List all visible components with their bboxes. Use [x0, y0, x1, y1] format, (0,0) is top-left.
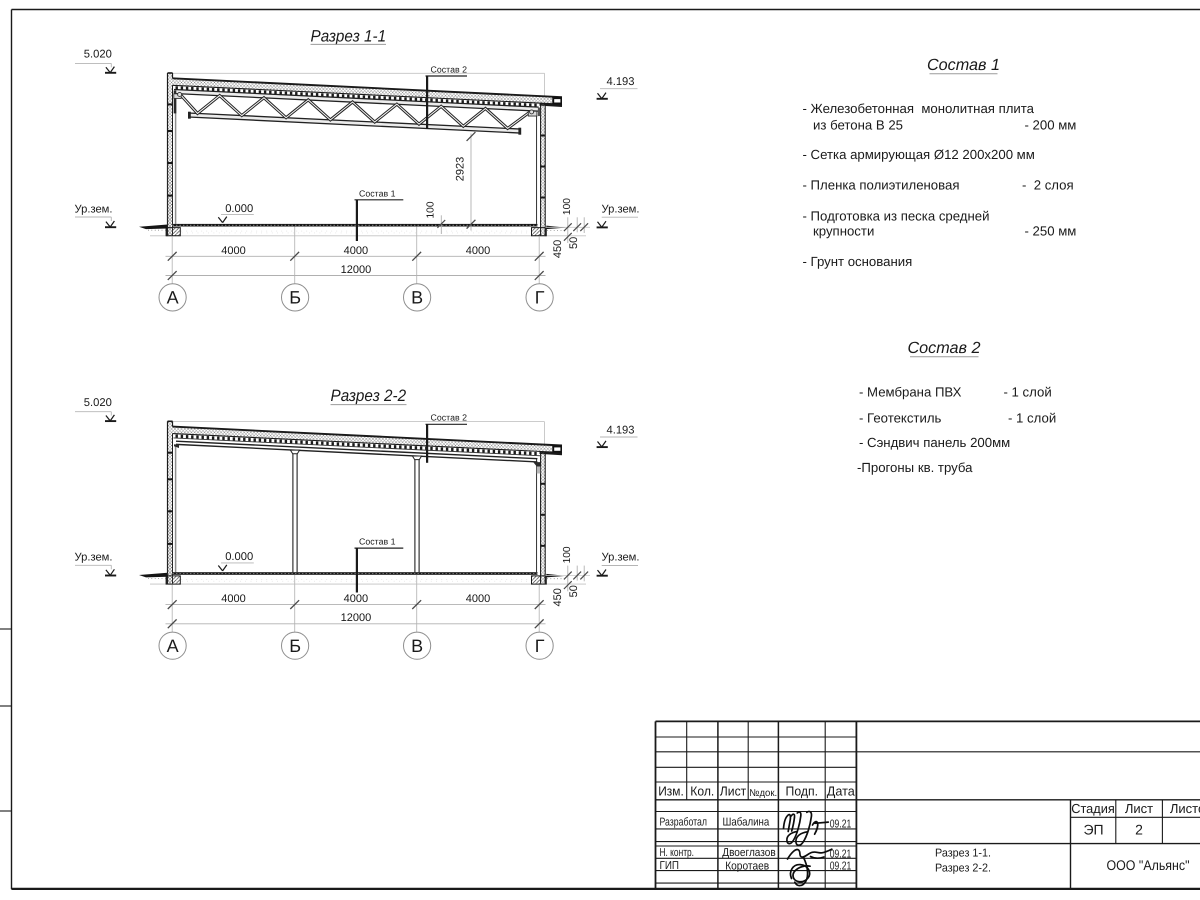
svg-text:Б: Б [289, 288, 301, 308]
svg-text:- Геотекстиль: - Геотекстиль [859, 411, 942, 426]
svg-text:12000: 12000 [341, 264, 372, 276]
svg-text:Ур.зем.: Ур.зем. [602, 203, 640, 215]
svg-text:Изм.: Изм. [658, 784, 684, 799]
svg-text:Ур.зем.: Ур.зем. [75, 552, 113, 564]
svg-text:Разрез 1-1: Разрез 1-1 [311, 27, 387, 45]
svg-text:4000: 4000 [221, 593, 245, 605]
svg-text:Ур.зем.: Ур.зем. [602, 552, 640, 564]
svg-text:Лист: Лист [720, 784, 747, 799]
svg-text:Ур.зем.: Ур.зем. [75, 203, 113, 215]
svg-text:Разрез 2-2: Разрез 2-2 [331, 387, 407, 405]
svg-text:Состав 1: Состав 1 [359, 537, 396, 547]
svg-text:4000: 4000 [344, 593, 368, 605]
svg-text:Коротаев: Коротаев [725, 861, 769, 873]
svg-text:09.21: 09.21 [830, 861, 852, 873]
svg-text:50: 50 [568, 585, 580, 597]
svg-text:12000: 12000 [341, 612, 372, 624]
svg-text:Г: Г [535, 636, 545, 656]
svg-text:№док.: №док. [749, 788, 777, 799]
svg-text:- Пленка полиэтиленовая: - Пленка полиэтиленовая [803, 177, 960, 192]
svg-text:5.020: 5.020 [84, 397, 112, 409]
svg-text:- 200 мм: - 200 мм [1025, 117, 1077, 132]
svg-text:Состав 1: Состав 1 [359, 188, 396, 198]
svg-text:4.193: 4.193 [607, 76, 635, 88]
svg-text:Г: Г [535, 288, 545, 308]
svg-text:5.020: 5.020 [84, 49, 112, 61]
svg-text:- Грунт основания: - Грунт основания [803, 254, 913, 269]
svg-text:Шабалина: Шабалина [723, 816, 770, 828]
svg-text:Б: Б [289, 636, 301, 656]
svg-text:0.000: 0.000 [225, 551, 253, 563]
svg-text:Разрез 1-1.: Разрез 1-1. [935, 848, 991, 860]
svg-text:4000: 4000 [221, 245, 245, 257]
svg-text:ЭП: ЭП [1083, 822, 1103, 838]
svg-text:Дата: Дата [827, 784, 856, 799]
svg-text:- 250 мм: - 250 мм [1025, 224, 1077, 239]
svg-text:Лист: Лист [1125, 801, 1153, 816]
svg-text:2923: 2923 [455, 157, 467, 181]
svg-text:4000: 4000 [466, 593, 490, 605]
svg-text:- Подготовка из песка средней: - Подготовка из песка средней [803, 208, 990, 223]
svg-text:2: 2 [1135, 822, 1143, 838]
svg-text:0.000: 0.000 [225, 203, 253, 215]
svg-text:Разработал: Разработал [660, 816, 708, 828]
svg-text:В: В [411, 636, 423, 656]
svg-text:- Мембрана ПВХ: - Мембрана ПВХ [859, 385, 962, 400]
svg-text:450: 450 [552, 588, 564, 606]
svg-text:Состав 1: Состав 1 [927, 56, 1000, 74]
svg-text:крупности: крупности [813, 224, 874, 239]
svg-text:- 2 слоя: - 2 слоя [1022, 177, 1074, 192]
svg-text:Подп.: Подп. [786, 784, 819, 799]
svg-text:450: 450 [552, 240, 564, 258]
svg-text:Листов: Листов [1170, 801, 1200, 816]
svg-text:В: В [411, 288, 423, 308]
svg-text:- Железобетонная монолитная п: - Железобетонная монолитная плита [803, 101, 1035, 116]
svg-text:Стадия: Стадия [1071, 801, 1115, 816]
svg-text:А: А [167, 636, 179, 656]
svg-text:Состав 2: Состав 2 [907, 339, 980, 357]
svg-text:100: 100 [426, 201, 437, 218]
svg-text:Разрез 2-2.: Разрез 2-2. [935, 862, 991, 874]
svg-text:100: 100 [562, 198, 573, 215]
svg-text:100: 100 [562, 546, 573, 563]
svg-text:ООО "Альянс": ООО "Альянс" [1107, 857, 1190, 873]
svg-text:09.21: 09.21 [830, 818, 852, 830]
svg-text:- Сетка армирующая Ø12 200х200: - Сетка армирующая Ø12 200х200 мм [803, 147, 1035, 162]
svg-text:ГИП: ГИП [660, 860, 680, 872]
svg-text:Состав 2: Состав 2 [431, 64, 468, 74]
svg-text:Состав 2: Состав 2 [431, 413, 468, 423]
svg-text:- 1 слой: - 1 слой [1004, 385, 1052, 400]
svg-text:Двоеглазов: Двоеглазов [722, 847, 776, 859]
svg-text:Н. контр.: Н. контр. [660, 847, 695, 859]
svg-text:50: 50 [568, 237, 580, 249]
svg-text:09.21: 09.21 [830, 849, 852, 861]
svg-text:- Сэндвич панель 200мм: - Сэндвич панель 200мм [859, 435, 1010, 450]
svg-text:из бетона В 25: из бетона В 25 [813, 117, 903, 132]
svg-text:А: А [167, 288, 179, 308]
svg-text:- 1 слой: - 1 слой [1008, 411, 1056, 426]
svg-text:4000: 4000 [466, 245, 490, 257]
svg-text:Кол.: Кол. [690, 784, 714, 799]
svg-text:4.193: 4.193 [607, 424, 635, 436]
svg-text:-Прогоны кв. труба: -Прогоны кв. труба [857, 460, 973, 475]
svg-text:4000: 4000 [344, 245, 368, 257]
